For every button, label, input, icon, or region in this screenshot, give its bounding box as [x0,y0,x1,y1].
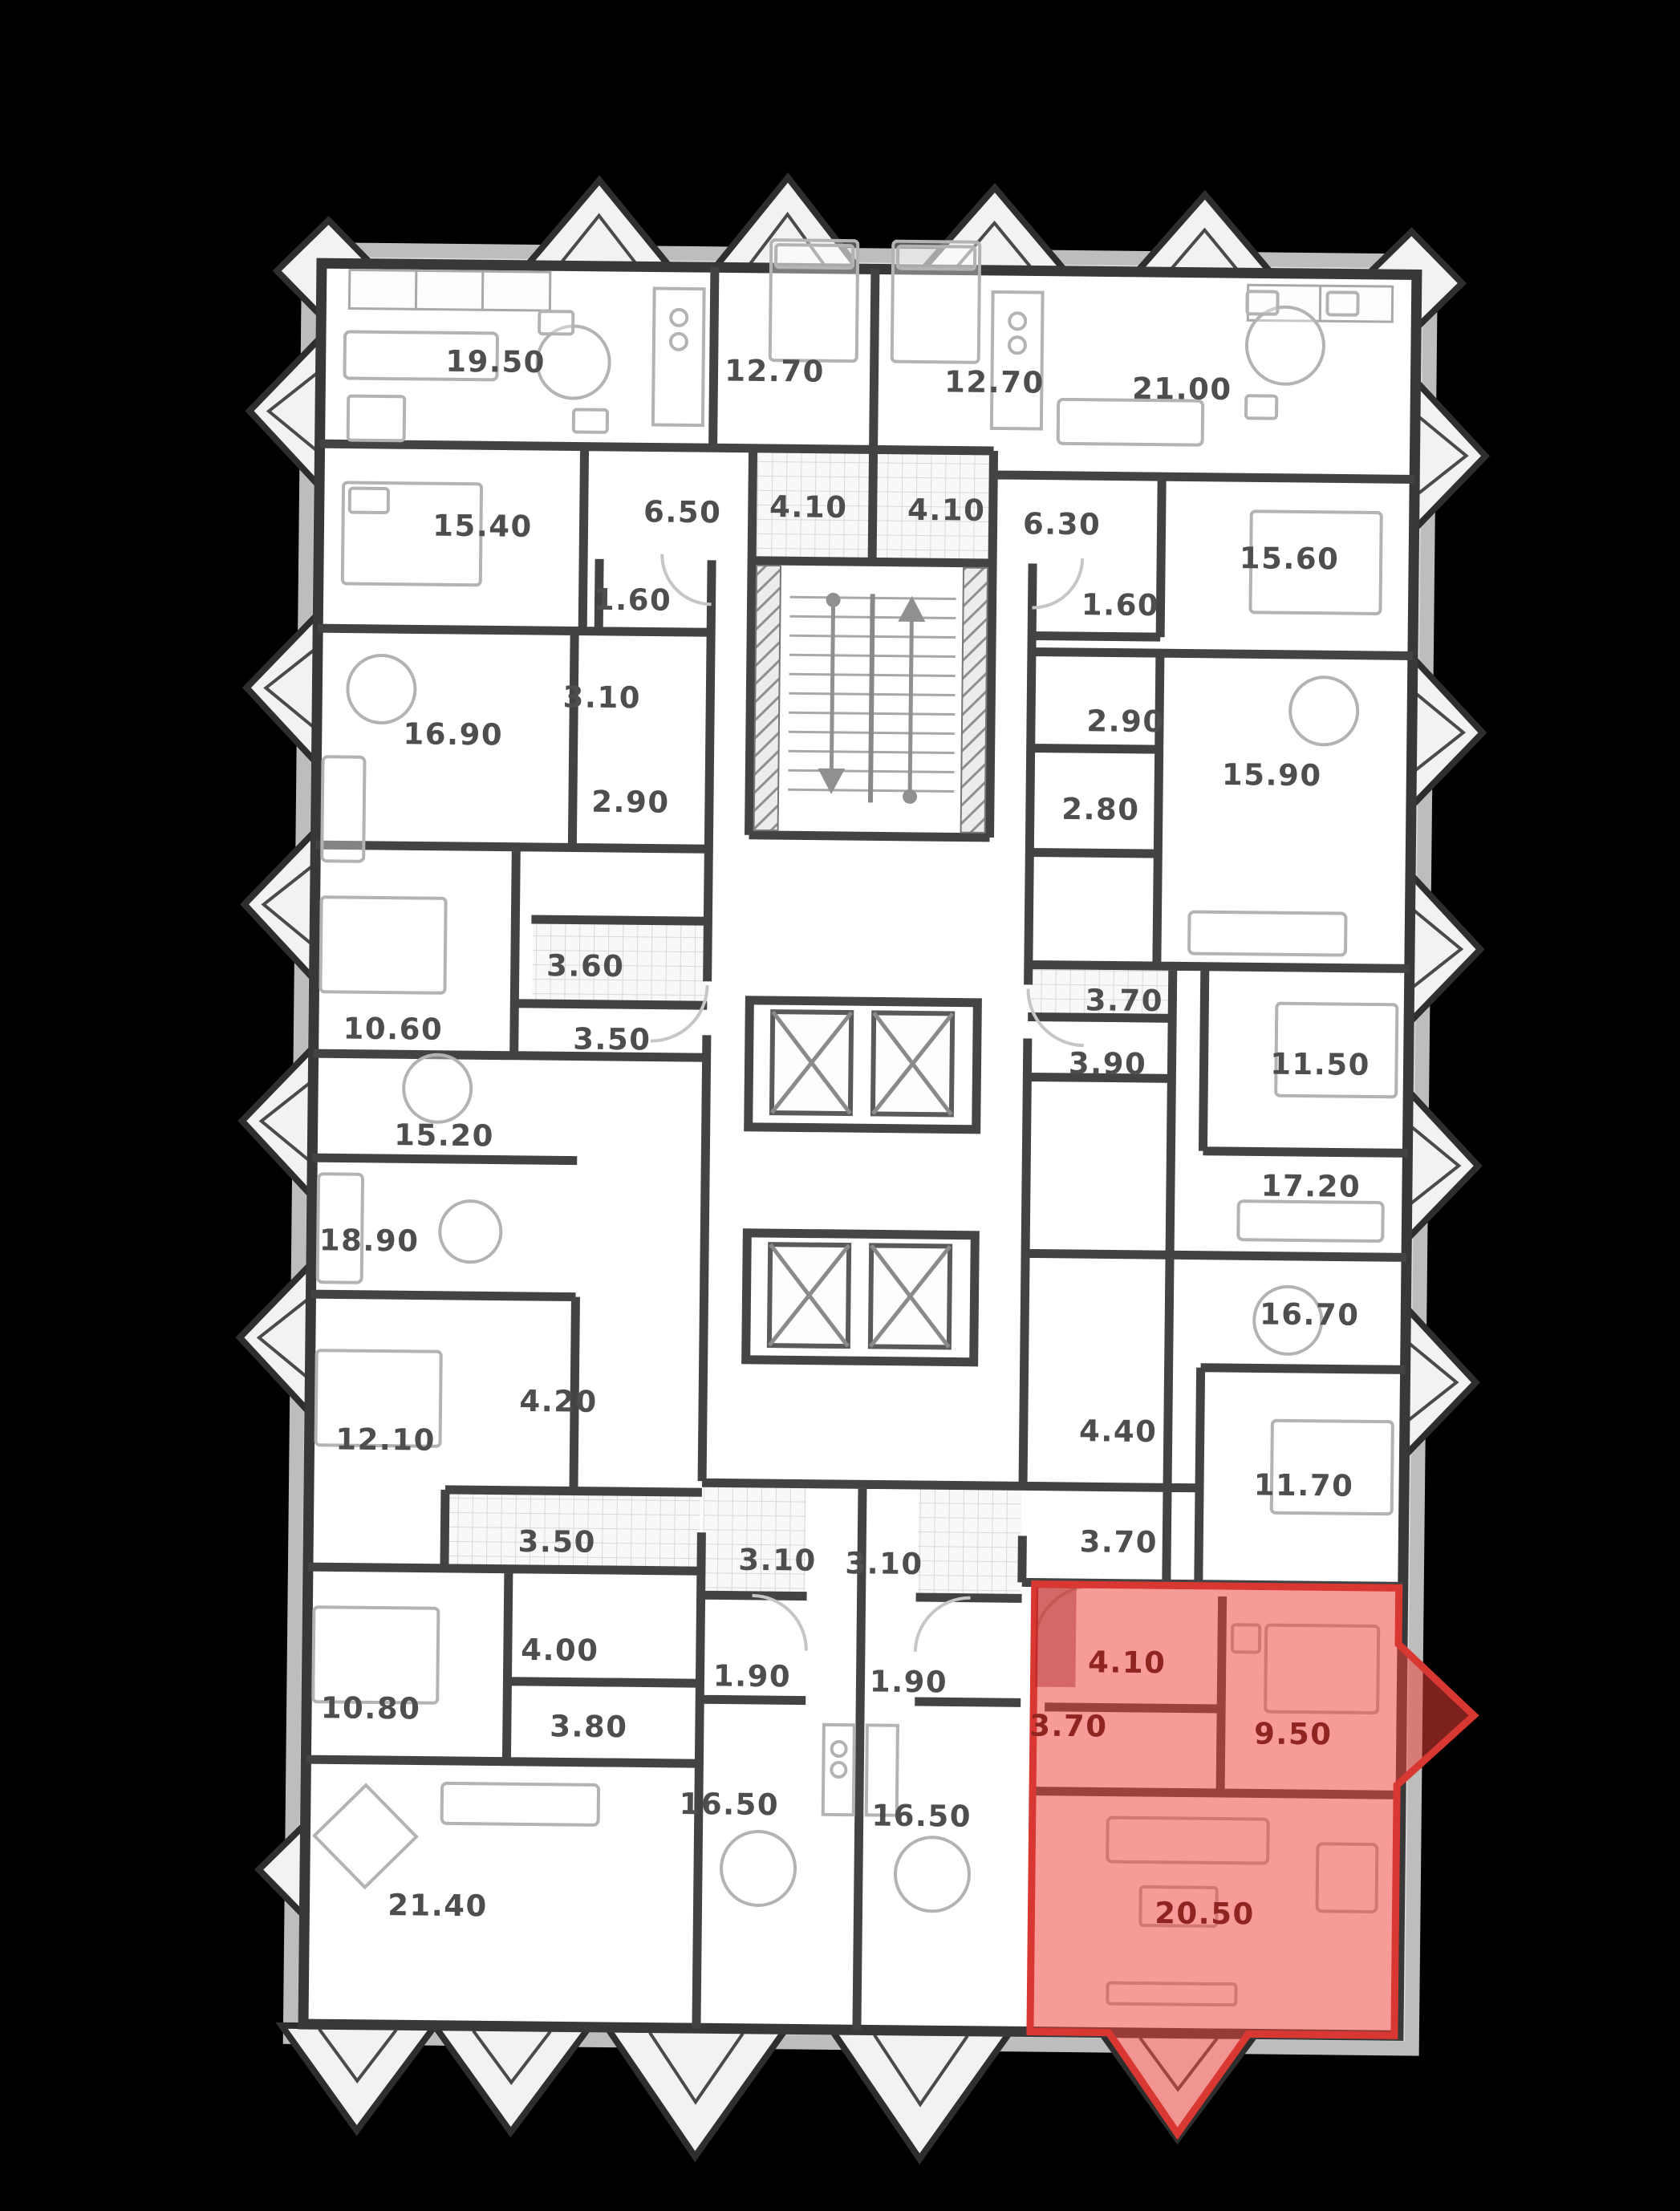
room-area-label: 3.50 [517,1524,596,1560]
room-area-label: 11.50 [1270,1047,1370,1082]
room-area-label: 18.90 [319,1223,420,1258]
room-area-label: 15.60 [1240,541,1340,576]
elevator-bank-upper [749,1000,978,1130]
round-table [404,1054,472,1122]
room-area-label: 3.10 [738,1543,817,1578]
room-area-label: 12.70 [944,364,1045,400]
chair [1246,396,1276,418]
room-area-label: 1.60 [594,582,672,618]
room-area-label: 1.90 [713,1658,792,1694]
kitchen-counter [823,1725,854,1815]
round-table [440,1201,501,1263]
sofa [1189,912,1346,955]
room-area-label: 4.40 [1079,1414,1158,1449]
sofa [442,1783,599,1825]
dining-table [537,326,610,399]
chair [539,311,573,334]
room-area-label: 2.90 [1086,704,1165,739]
pillow [898,246,975,270]
room-area-label: 3.70 [1079,1524,1158,1560]
bed [313,1607,438,1703]
armchair [348,396,405,441]
pillow [350,489,388,513]
pillow [776,245,853,268]
room-area-label: 3.70 [1086,983,1164,1018]
round-table [347,655,416,724]
room-area-label: 2.90 [591,785,670,820]
room-area-label: 21.00 [1132,371,1232,407]
room-area-label: 15.20 [394,1118,494,1153]
room-area-label: 3.60 [546,948,625,984]
room-area-label: 4.20 [519,1384,598,1419]
room-area-label: 4.10 [1088,1645,1167,1680]
room-area-label: 11.70 [1254,1467,1354,1503]
room-area-label: 3.70 [1029,1709,1108,1744]
room-area-label: 3.10 [562,680,641,715]
room-area-label: 6.50 [643,494,722,529]
room-area-label: 21.40 [388,1888,488,1923]
chair [1247,291,1277,314]
room-area-label: 9.50 [1254,1716,1333,1751]
chair [574,409,607,432]
room-area-label: 1.90 [870,1664,948,1699]
highlighted-shaft-tint [1035,1588,1076,1688]
room-area-label: 3.10 [845,1546,923,1581]
room-area-label: 2.80 [1061,792,1140,827]
room-area-label: 16.50 [871,1798,972,1833]
dining-table [1246,306,1324,384]
elevator-bank-lower [746,1233,976,1362]
room-area-label: 20.50 [1154,1896,1255,1931]
room-area-label: 10.60 [343,1012,443,1047]
room-area-label: 15.90 [1222,757,1322,793]
sofa [1238,1201,1382,1241]
round-table [1290,677,1358,745]
room-area-label: 17.20 [1260,1169,1361,1204]
building-plan: 19.5012.7012.7021.0015.406.504.104.106.3… [231,172,1490,2164]
room-area-label: 16.50 [679,1787,779,1822]
room-area-label: 3.90 [1069,1046,1147,1081]
room-area-label: 10.80 [321,1690,421,1726]
room-area-label: 19.50 [445,344,546,379]
room-area-label: 4.10 [907,493,986,528]
room-area-label: 16.90 [403,716,503,752]
round-table [895,1837,969,1912]
room-area-label: 12.70 [724,353,825,388]
room-area-label: 3.50 [573,1022,651,1057]
bed [320,897,445,993]
floor-plan-canvas: 19.5012.7012.7021.0015.406.504.104.106.3… [0,0,1680,2211]
room-area-label: 16.70 [1260,1296,1360,1332]
chair [1327,292,1357,314]
room-area-label: 15.40 [432,509,533,544]
room-area-label: 1.60 [1081,587,1160,623]
room-area-label: 12.10 [335,1422,436,1457]
room-area-label: 4.00 [521,1633,599,1668]
room-area-label: 6.30 [1023,506,1102,542]
room-area-label: 4.10 [769,489,848,525]
sofa [322,757,364,862]
room-area-label: 3.80 [550,1709,628,1744]
round-table [721,1832,796,1906]
